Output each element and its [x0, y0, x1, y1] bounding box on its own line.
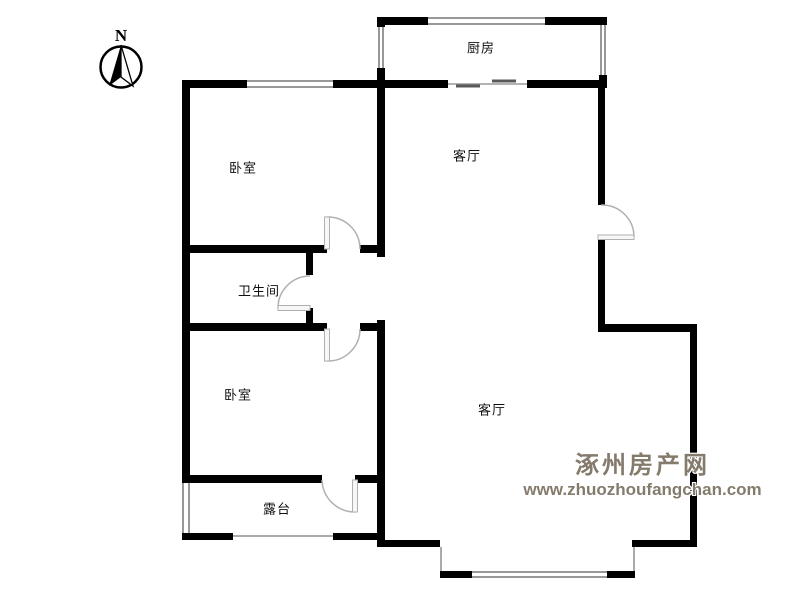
compass-north-label: N [115, 26, 127, 46]
watermark-site-name: 涿州房产网 [520, 452, 765, 480]
room-label-terrace: 露台 [263, 499, 291, 518]
room-label-kitchen: 厨房 [467, 38, 495, 57]
room-label-living-lower: 客厅 [478, 400, 506, 419]
bedroom2-door-icon [325, 329, 361, 361]
room-label-living-upper: 客厅 [453, 146, 481, 165]
room-label-bedroom-upper: 卧室 [229, 158, 257, 177]
terrace-door-icon [322, 480, 358, 512]
entry-door-icon [598, 205, 634, 240]
bathroom-door-icon [278, 276, 310, 311]
room-label-bathroom: 卫生间 [238, 281, 280, 300]
watermark-site-url: www.zhuozhoufangchan.com [520, 480, 765, 500]
floor-plan: N 厨房 客厅 卧室 卫生间 卧室 客厅 露台 涿州房产网 www.zhuozh… [0, 0, 800, 600]
room-label-bedroom-lower: 卧室 [224, 385, 252, 404]
watermark: 涿州房产网 www.zhuozhoufangchan.com [520, 452, 765, 499]
kitchen-sliding-door-icon [448, 80, 527, 88]
plan-symbols [0, 0, 800, 600]
north-compass-icon [101, 45, 142, 88]
bedroom1-door-icon [325, 217, 361, 249]
